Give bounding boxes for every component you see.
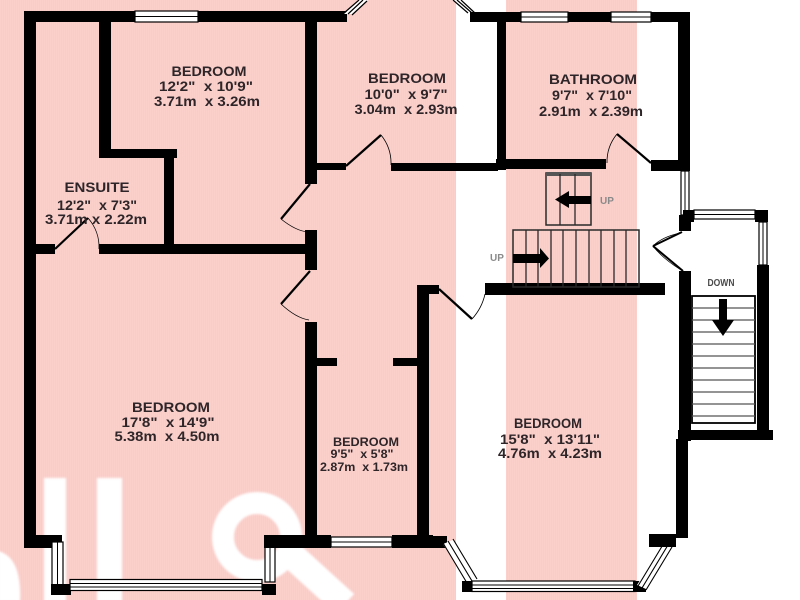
svg-text:UP: UP [490,253,504,264]
svg-text:3.04m x 2.93m: 3.04m x 2.93m [355,101,458,117]
svg-text:12'2" x 10'9": 12'2" x 10'9" [159,78,253,94]
svg-text:10'0" x 9'7": 10'0" x 9'7" [365,86,448,102]
svg-text:DOWN: DOWN [708,278,735,289]
svg-text:2.87m x 1.73m: 2.87m x 1.73m [320,460,408,474]
svg-text:ENSUITE: ENSUITE [65,179,130,195]
svg-text:9'5" x 5'8": 9'5" x 5'8" [331,447,394,461]
svg-text:5.38m x 4.50m: 5.38m x 4.50m [115,428,220,444]
svg-text:BATHROOM: BATHROOM [549,71,637,87]
svg-text:9'7" x 7'10": 9'7" x 7'10" [552,87,632,103]
svg-text:3.71m x 3.26m: 3.71m x 3.26m [154,93,260,109]
svg-text:BEDROOM: BEDROOM [172,63,247,79]
svg-text:2.91m x 2.39m: 2.91m x 2.39m [539,103,643,119]
svg-text:3.71m x 2.22m: 3.71m x 2.22m [45,211,147,227]
svg-text:4.76m x 4.23m: 4.76m x 4.23m [498,445,602,461]
svg-text:BEDROOM: BEDROOM [368,70,446,86]
svg-text:BEDROOM: BEDROOM [514,415,582,431]
svg-text:UP: UP [600,196,614,207]
svg-text:BEDROOM: BEDROOM [132,399,210,415]
